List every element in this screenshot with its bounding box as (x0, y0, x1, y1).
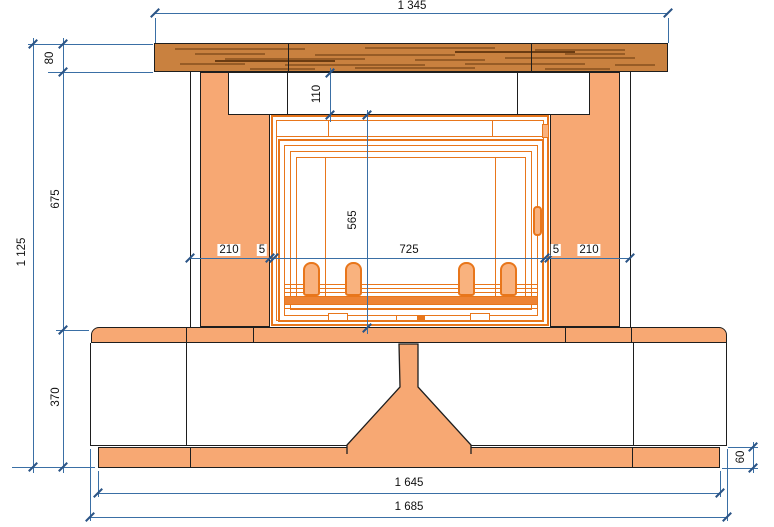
glass-division (495, 158, 496, 302)
dim-label-surround-height: 675 (50, 187, 62, 210)
mantel-shelf (154, 43, 668, 72)
andiron-post (500, 262, 517, 296)
dim-label-mantel-width: 1 345 (396, 0, 429, 12)
dim-label-left-leg: 210 (217, 244, 240, 256)
frieze-joint-line (287, 72, 288, 115)
door-hinge (542, 124, 549, 138)
wood-grain-hatching (155, 44, 667, 71)
ash-drawer-handle (396, 315, 418, 321)
dim-label-plinth-height: 60 (735, 449, 747, 466)
dim-line-firebox-height (367, 110, 368, 334)
right-side-return (619, 72, 631, 327)
ash-drawer-knob (418, 315, 425, 322)
plinth-joint (190, 447, 191, 468)
dim-label-plinth-width: 1 645 (393, 477, 426, 489)
extension-line (155, 18, 156, 43)
dim-label-firebox-width: 725 (397, 244, 420, 256)
glass-panel (296, 157, 526, 303)
bench-top-joint (253, 327, 254, 343)
dim-label-right-gap: 5 (551, 244, 561, 256)
bottom-latch (328, 313, 348, 321)
extension-line (12, 467, 95, 468)
dim-line-plinth-width (98, 493, 720, 494)
fireplace-front-elevation-drawing: 1 345 80 675 1 125 370 110 565 210 5 725… (0, 0, 774, 527)
extension-line (90, 449, 91, 521)
extension-line (727, 449, 728, 521)
mantel-board-joint (531, 44, 532, 71)
bench-top-joint (565, 327, 566, 343)
dim-label-left-gap: 5 (257, 244, 267, 256)
extension-line (668, 18, 669, 43)
mantel-board-joint (288, 44, 289, 71)
extension-line (28, 44, 153, 45)
dim-label-bench-width: 1 685 (393, 501, 426, 513)
dim-label-mantel-thickness: 80 (44, 50, 56, 67)
ash-lip (285, 296, 537, 305)
dim-line-bench-width (90, 517, 727, 518)
dim-line-height-chain (63, 38, 64, 473)
bench-top-joint (631, 327, 632, 343)
firebox-top-louver (276, 120, 544, 137)
center-pedestal (343, 343, 478, 455)
bottom-latch (470, 313, 490, 321)
dim-line-total-height (33, 38, 34, 473)
andiron-post (458, 262, 475, 296)
andiron-post (303, 262, 320, 296)
glass-division (325, 158, 326, 302)
bench-panel-joint (186, 343, 187, 446)
frieze-joint-line (517, 72, 518, 115)
dim-line-width-chain (190, 258, 630, 259)
dim-label-bench-height: 370 (50, 385, 62, 408)
dim-label-right-leg: 210 (577, 244, 600, 256)
frieze-band (228, 72, 590, 115)
door-handle (533, 206, 542, 236)
bench-top-joint (186, 327, 187, 343)
andiron-post (345, 262, 362, 296)
plinth-joint (632, 447, 633, 468)
dim-line-mantel-width (155, 13, 668, 14)
louver-joint (328, 120, 329, 137)
bench-panel-joint (633, 343, 634, 446)
louver-joint (492, 120, 493, 137)
dim-label-total-height: 1 125 (16, 236, 28, 269)
dim-label-firebox-height: 565 (347, 208, 359, 231)
dim-label-frieze-height: 110 (311, 83, 323, 105)
